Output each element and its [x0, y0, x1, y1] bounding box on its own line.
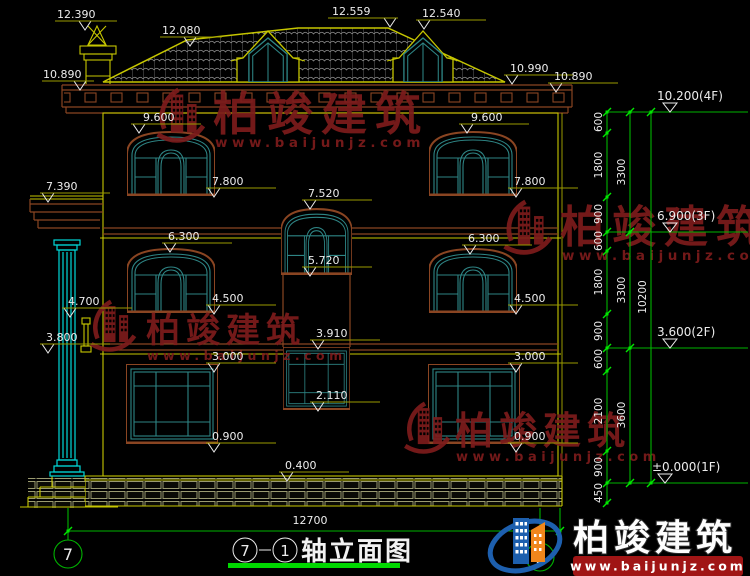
svg-text:9.600: 9.600 [143, 111, 175, 124]
logo-tower-orange [531, 522, 545, 562]
dim-segment: 600 [593, 231, 605, 251]
svg-text:7.800: 7.800 [514, 175, 546, 188]
svg-text:12.390: 12.390 [57, 8, 96, 21]
porch-column [50, 240, 84, 476]
svg-text:10.200(4F): 10.200(4F) [657, 89, 723, 103]
watermark-domain: www.baijunjz.com [562, 248, 750, 264]
dim-annotation: 0.400 [279, 459, 349, 481]
porch-bracket [81, 318, 91, 352]
elevation-canvas: 柏竣建筑 www.baijunjz.com 柏竣建筑 www.baijunjz.… [0, 0, 750, 576]
svg-text:6.300: 6.300 [168, 230, 200, 243]
svg-text:±0.000(1F): ±0.000(1F) [652, 460, 720, 474]
brand-domain: www.baijunjz.com [570, 559, 746, 574]
svg-text:2.110: 2.110 [316, 389, 348, 402]
dim-annotation: 3.000 [508, 350, 578, 372]
window-1f-left [123, 364, 221, 444]
dim-segment: 1800 [593, 269, 605, 296]
title-underline [228, 563, 400, 568]
dim-total: 10200 [637, 280, 649, 313]
level-marker-2f: 3.600(2F) [657, 325, 715, 348]
svg-text:0.400: 0.400 [285, 459, 317, 472]
dim-annotation: 7.800 [206, 175, 276, 197]
svg-text:9.600: 9.600 [471, 111, 503, 124]
dim-annotation: 7.520 [302, 187, 372, 209]
svg-text:12.080: 12.080 [162, 24, 201, 37]
dim-segment: 1800 [593, 152, 605, 179]
dim-annotation: 12.390 [55, 8, 117, 30]
dim-segment: 600 [593, 349, 605, 369]
dim-subtotal: 3300 [616, 277, 628, 304]
svg-text:3.000: 3.000 [514, 350, 546, 363]
dim-segment: 2100 [593, 398, 605, 425]
svg-text:7.800: 7.800 [212, 175, 244, 188]
watermark-brand: 柏竣建筑 [146, 311, 306, 351]
title-axis-to: 1 [280, 542, 290, 560]
watermark-domain: www.baijunjz.com [147, 348, 347, 363]
svg-text:0.900: 0.900 [212, 430, 244, 443]
svg-text:4.500: 4.500 [514, 292, 546, 305]
svg-text:6.300: 6.300 [468, 232, 500, 245]
drawing-title: 7 1 轴立面图 [228, 536, 413, 568]
svg-text:7.390: 7.390 [46, 180, 78, 193]
title-axis-from: 7 [240, 542, 250, 560]
svg-text:10.990: 10.990 [510, 62, 549, 75]
svg-text:5.720: 5.720 [308, 254, 340, 267]
svg-text:7.520: 7.520 [308, 187, 340, 200]
dim-annotation: 7.800 [508, 175, 578, 197]
dim-segment: 450 [593, 483, 605, 503]
dim-segment: 900 [593, 204, 605, 224]
svg-text:3.800: 3.800 [46, 331, 78, 344]
watermark-brand: 柏竣建筑 [213, 87, 429, 141]
dim-annotation: 0.900 [206, 430, 276, 452]
dim-annotation: 9.600 [459, 111, 529, 133]
dim-segment: 600 [593, 112, 605, 132]
svg-text:0.900: 0.900 [514, 430, 546, 443]
svg-text:12.559: 12.559 [332, 5, 371, 18]
svg-text:3.600(2F): 3.600(2F) [657, 325, 715, 339]
window-2f-left [124, 249, 218, 313]
dim-subtotal: 3600 [616, 402, 628, 429]
svg-text:10.890: 10.890 [43, 68, 82, 81]
dim-annotation: 4.500 [508, 292, 578, 314]
cad-elevation-drawing: 柏竣建筑 www.baijunjz.com 柏竣建筑 www.baijunjz.… [0, 0, 750, 576]
level-marker-4f: 10.200(4F) [657, 89, 723, 112]
dim-subtotal: 3300 [616, 159, 628, 186]
level-marker-1f: ±0.000(1F) [652, 460, 720, 483]
title-text: 轴立面图 [301, 536, 413, 567]
dim-segment: 900 [593, 457, 605, 477]
dim-annotation: 12.540 [416, 7, 486, 29]
svg-text:4.700: 4.700 [68, 295, 100, 308]
dim-annotation: 10.890 [548, 70, 618, 92]
svg-text:6.900(3F): 6.900(3F) [657, 209, 715, 223]
plinth [85, 476, 562, 506]
dim-annotation: 6.300 [162, 230, 232, 252]
window-3f-right [426, 132, 520, 196]
dim-segment: 900 [593, 321, 605, 341]
svg-text:7: 7 [63, 545, 73, 564]
watermark-domain: www.baijunjz.com [215, 135, 425, 151]
overall-width-dim: 12700 [293, 514, 328, 527]
svg-text:3.910: 3.910 [316, 327, 348, 340]
window-2f-right [426, 249, 520, 313]
brand-name: 柏竣建筑 [573, 518, 737, 559]
svg-text:4.500: 4.500 [212, 292, 244, 305]
dim-annotation: 3.910 [310, 327, 380, 349]
dim-annotation: 12.559 [328, 5, 398, 27]
axis-bubble-left: 7 [54, 540, 82, 568]
svg-text:10.890: 10.890 [554, 70, 593, 83]
svg-text:3.000: 3.000 [212, 350, 244, 363]
watermark-brand: 柏竣建筑 [560, 202, 750, 253]
svg-text:12.540: 12.540 [422, 7, 461, 20]
brand-logo: 柏竣建筑 www.baijunjz.com [483, 512, 746, 576]
